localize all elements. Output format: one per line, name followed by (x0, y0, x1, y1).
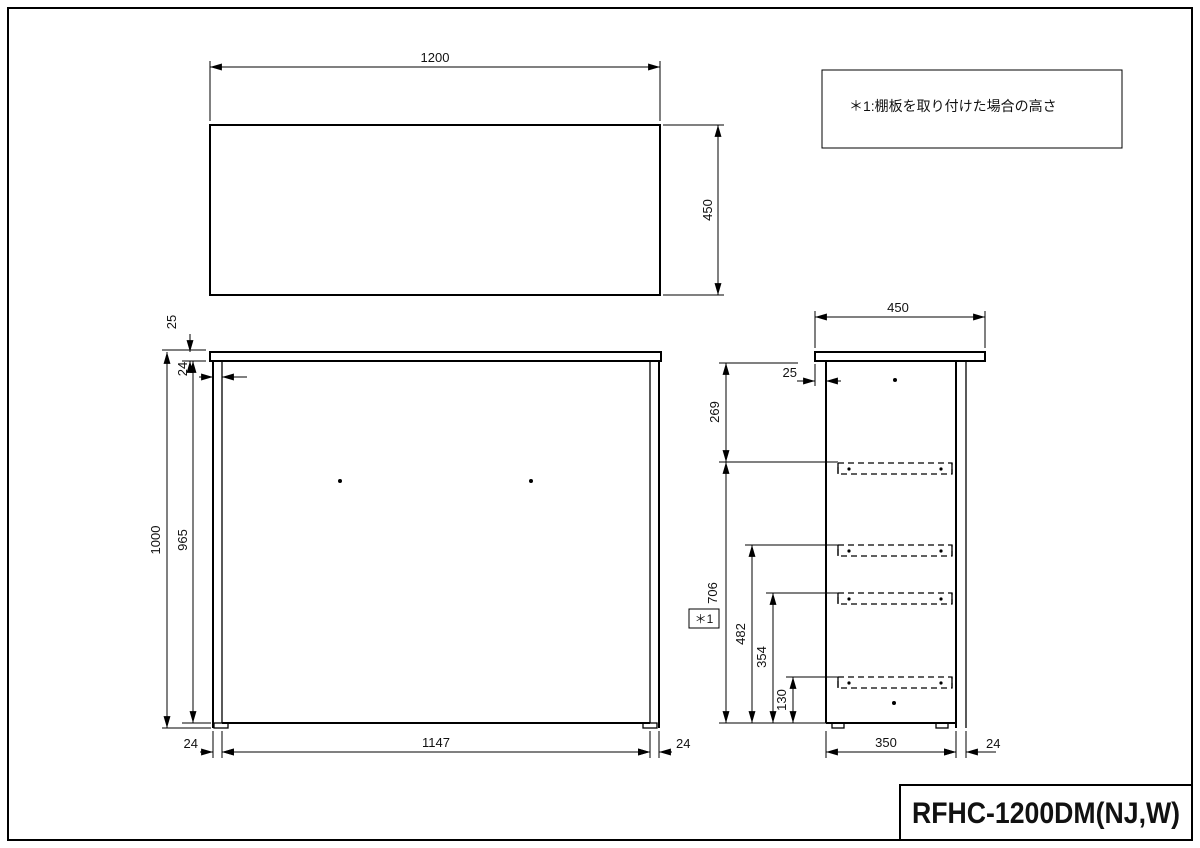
shelf-row (838, 545, 952, 556)
side-top-board (815, 352, 985, 361)
dim-side-shelf1: 706 (705, 582, 720, 604)
top-view-board (210, 125, 660, 295)
note-box: ＊1:棚板を取り付けた場合の高さ (822, 70, 1122, 148)
dim-side-shelf3: 354 (754, 646, 769, 668)
shelf-row (838, 463, 952, 474)
top-view: 1200 450 (210, 50, 724, 295)
front-panel-inner-lines (222, 361, 650, 723)
dim-front-panel-right: 24 (676, 736, 690, 751)
dim-front-height: 1000 (148, 526, 163, 555)
dim-side-shelf2: 482 (733, 623, 748, 645)
note-text: ＊1:棚板を取り付けた場合の高さ (849, 98, 1057, 114)
dim-side-back-panel: 24 (986, 736, 1000, 751)
shelf-note-marker: ＊1 (695, 612, 714, 626)
dim-side-shelf4: 130 (774, 689, 789, 711)
dim-side-body-depth: 350 (875, 735, 897, 750)
screw-hole (529, 479, 533, 483)
dim-front-top-thickness: 25 (164, 315, 179, 329)
shelf-row (838, 593, 952, 604)
dim-side-setback: 25 (783, 365, 797, 380)
dim-front-panel-left: 24 (184, 736, 198, 751)
shelf-position-rows (838, 463, 952, 688)
screw-hole (338, 479, 342, 483)
dim-front-inner-width: 1147 (422, 735, 450, 750)
front-top-board (210, 352, 661, 361)
dim-top-depth: 450 (700, 199, 715, 221)
screw-hole (893, 378, 897, 382)
front-view: 25 24 1000 965 1147 24 24 (148, 315, 690, 758)
model-number: RFHC-1200DM(NJ,W) (912, 797, 1180, 830)
dim-side-top-depth: 450 (887, 300, 909, 315)
title-block: RFHC-1200DM(NJ,W) (900, 785, 1192, 840)
front-body-outline (213, 361, 659, 728)
screw-hole (892, 701, 896, 705)
shelf-row (838, 677, 952, 688)
dim-side-top-to-shelf: 269 (707, 401, 722, 423)
dim-top-width: 1200 (421, 50, 450, 65)
dim-front-panel-top: 24 (175, 362, 190, 376)
dim-front-inner-height: 965 (175, 529, 190, 551)
drawing-canvas: 1200 450 25 24 1000 965 1147 (0, 0, 1200, 848)
side-view: 450 25 269 706 ＊1 482 354 130 350 24 (689, 300, 1000, 758)
